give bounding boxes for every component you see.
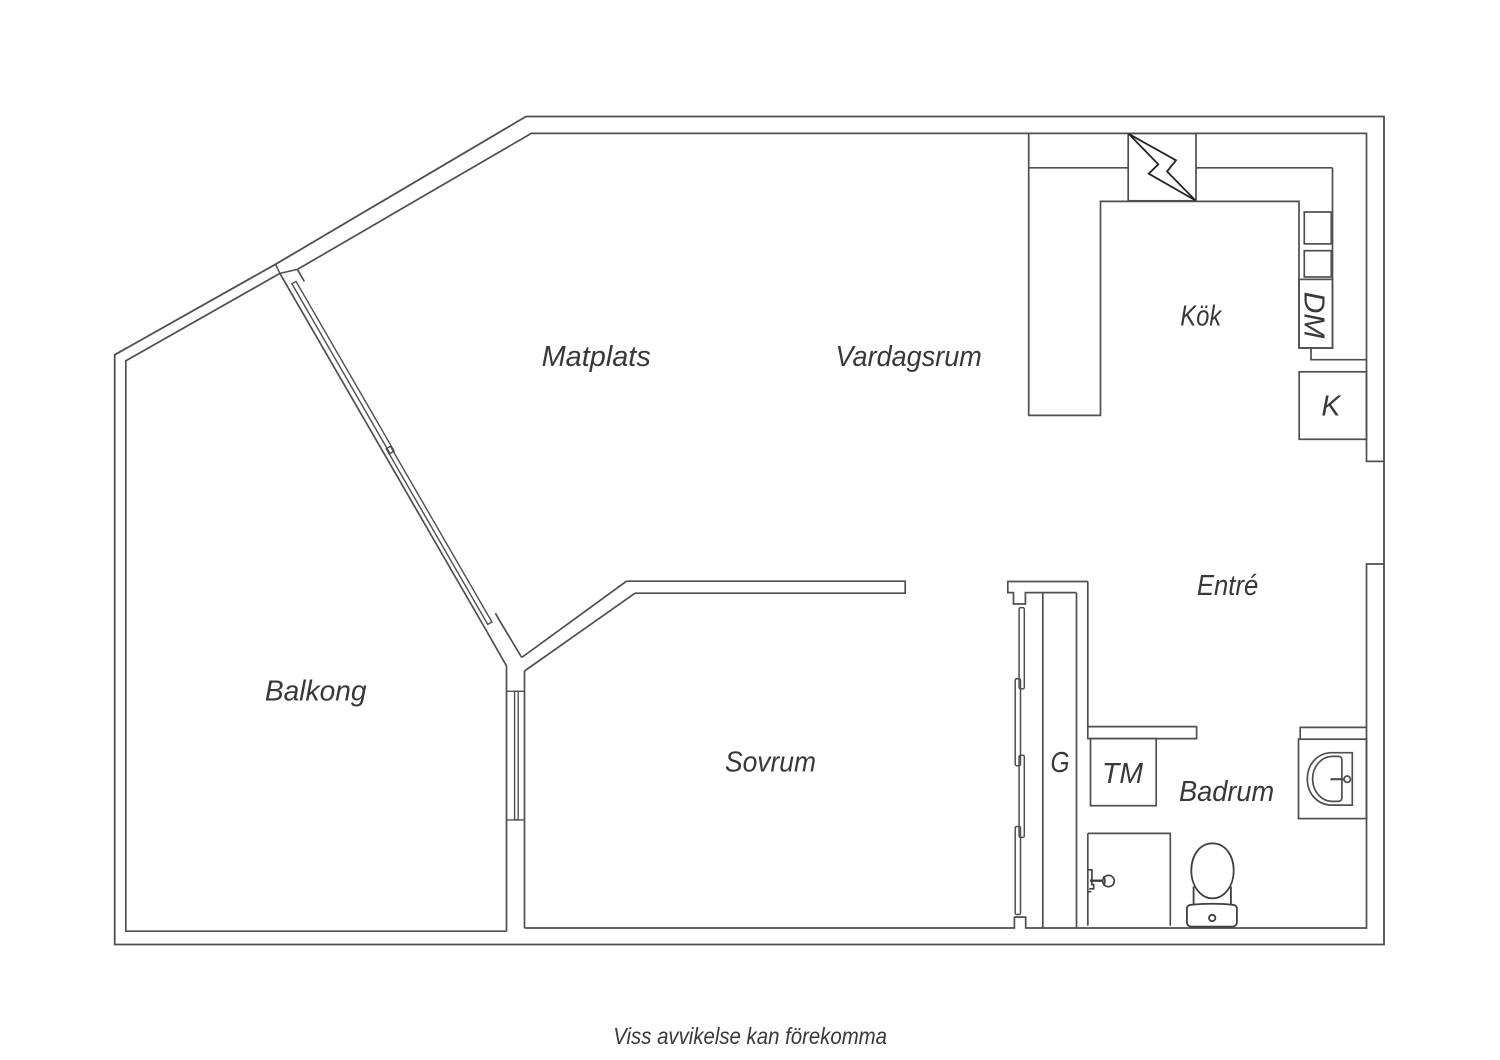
svg-text:K: K [1321, 391, 1342, 423]
svg-text:TM: TM [1102, 758, 1143, 790]
svg-text:G: G [1051, 747, 1070, 779]
svg-text:Sovrum: Sovrum [725, 747, 816, 779]
svg-text:Kök: Kök [1180, 300, 1222, 332]
svg-text:Entré: Entré [1197, 570, 1258, 602]
svg-text:Badrum: Badrum [1179, 776, 1274, 808]
svg-text:Viss avvikelse kan förekomma: Viss avvikelse kan förekomma [613, 1023, 887, 1049]
svg-text:DM: DM [1298, 292, 1330, 339]
svg-text:Balkong: Balkong [265, 675, 367, 707]
svg-text:Vardagsrum: Vardagsrum [836, 341, 982, 373]
svg-text:Matplats: Matplats [542, 341, 651, 373]
